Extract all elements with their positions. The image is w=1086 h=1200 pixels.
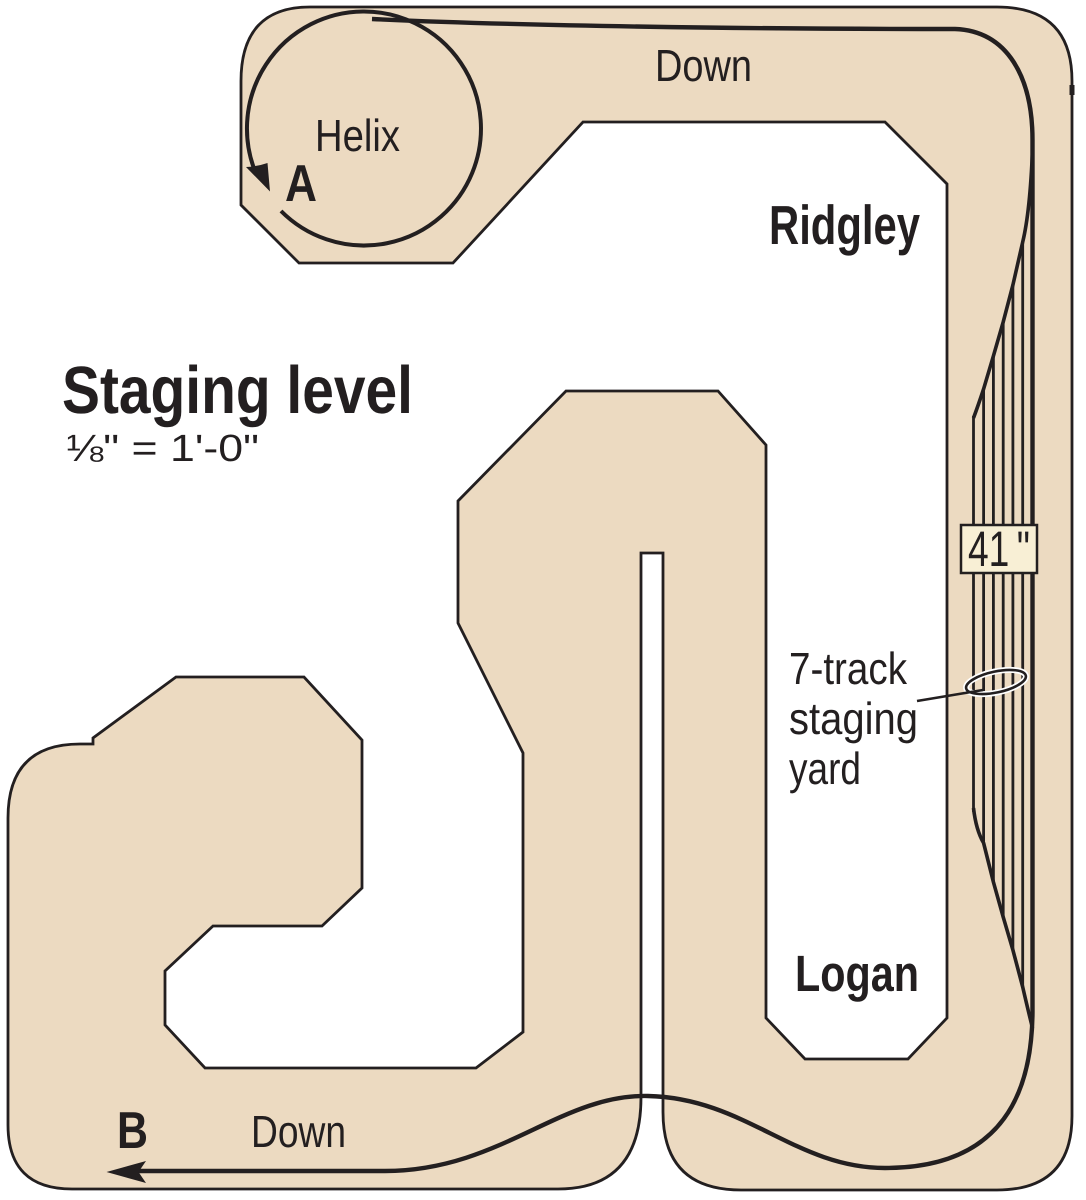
svg-text:staging: staging bbox=[789, 693, 918, 744]
svg-text:Logan: Logan bbox=[795, 945, 919, 1002]
svg-text:⅛" = 1'-0": ⅛" = 1'-0" bbox=[66, 428, 259, 470]
svg-text:7-track: 7-track bbox=[789, 643, 907, 694]
svg-text:Helix: Helix bbox=[315, 110, 400, 161]
svg-text:yard: yard bbox=[789, 743, 861, 794]
svg-text:A: A bbox=[285, 155, 317, 213]
svg-text:Down: Down bbox=[251, 1106, 346, 1157]
svg-text:B: B bbox=[117, 1102, 148, 1160]
svg-text:Down: Down bbox=[655, 40, 752, 91]
svg-text:41 ": 41 " bbox=[968, 521, 1030, 577]
svg-text:Staging level: Staging level bbox=[62, 353, 413, 428]
svg-text:Ridgley: Ridgley bbox=[769, 194, 920, 256]
